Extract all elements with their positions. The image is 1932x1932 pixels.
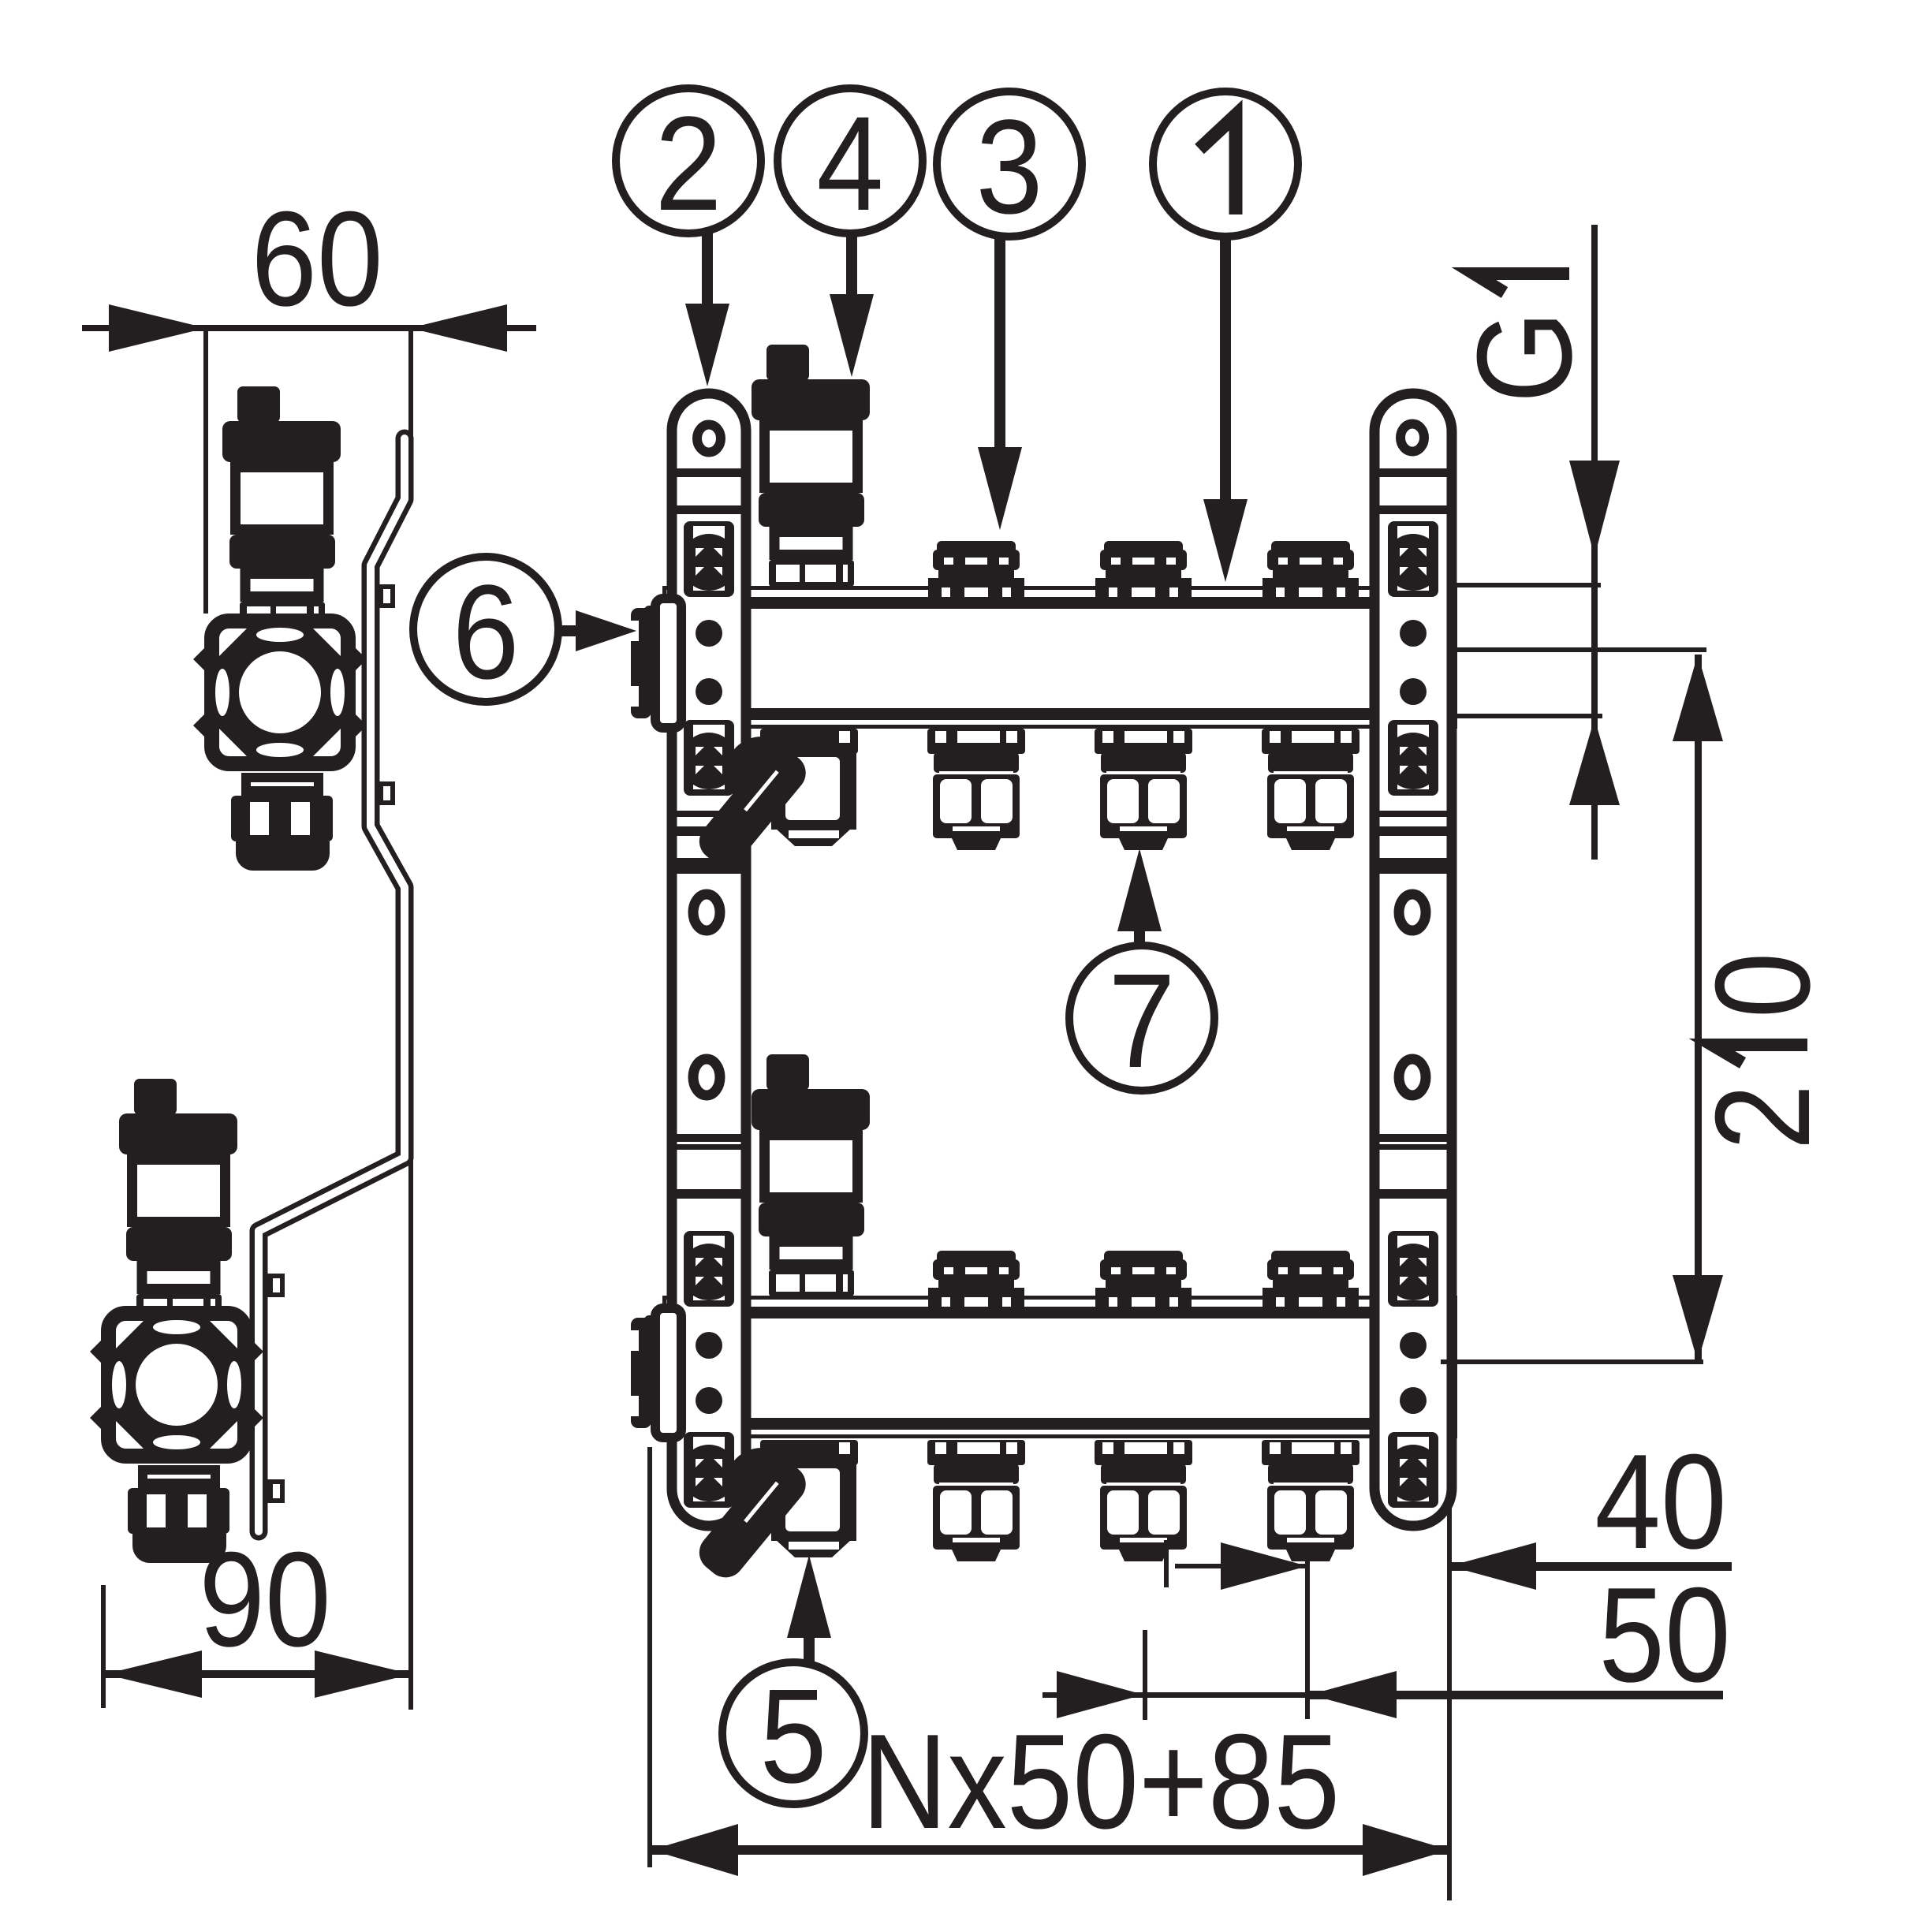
svg-text:5: 5 (759, 1662, 826, 1811)
svg-text:6: 6 (452, 558, 519, 707)
svg-text:90: 90 (199, 1524, 330, 1675)
svg-text:4: 4 (816, 90, 883, 239)
svg-text:2: 2 (655, 90, 722, 239)
svg-text:3: 3 (975, 93, 1042, 242)
svg-text:Nx50+85: Nx50+85 (862, 1706, 1340, 1857)
svg-text:60: 60 (251, 184, 382, 334)
svg-text:G: G (1449, 311, 1600, 403)
svg-text:2: 2 (1688, 1084, 1838, 1151)
svg-text:40: 40 (1594, 1427, 1726, 1577)
svg-text:0: 0 (1688, 953, 1838, 1019)
svg-text:7: 7 (1108, 947, 1175, 1096)
svg-text:50: 50 (1598, 1560, 1730, 1710)
